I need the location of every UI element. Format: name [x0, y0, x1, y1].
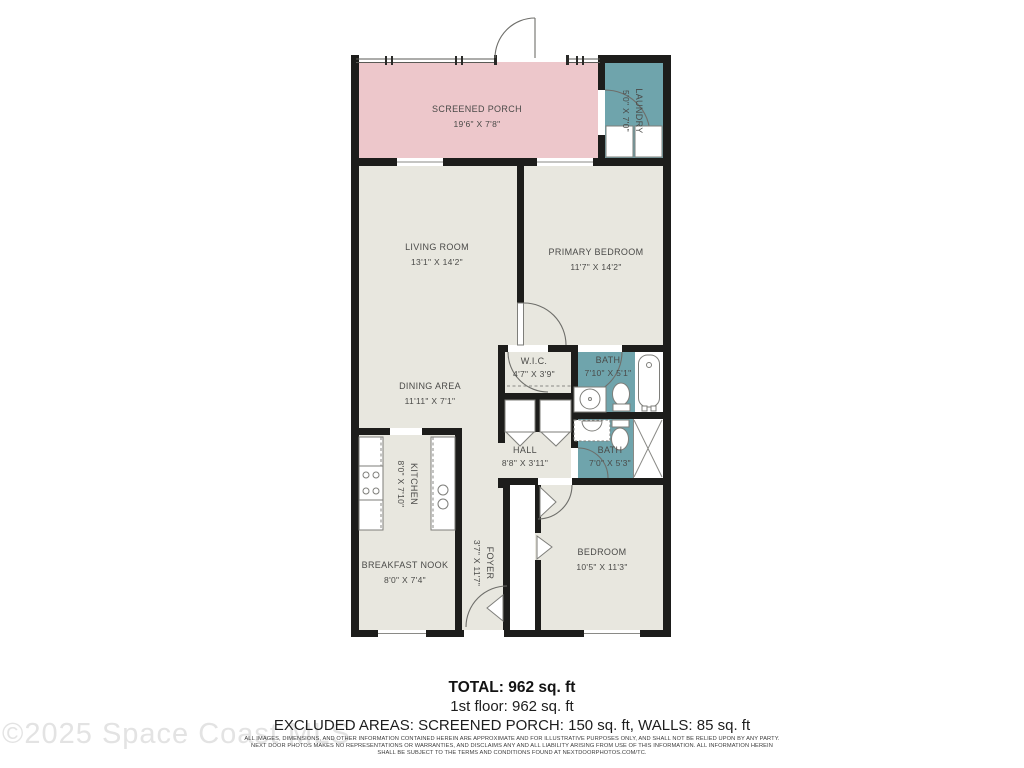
label-screened-porch: SCREENED PORCH: [432, 104, 522, 114]
wall-laundry-left-upper: [598, 63, 605, 90]
summary-total: TOTAL: 962 sq. ft: [449, 679, 576, 696]
shower: [633, 419, 663, 478]
label-foyer: FOYER: [485, 547, 495, 580]
window-living-porch: [397, 158, 443, 166]
window-tick: [576, 56, 578, 65]
disclaimer-line-2: NEXT DOOR PHOTOS MAKES NO REPRESENTATION…: [251, 743, 773, 749]
bathtub: [635, 352, 663, 412]
opening-bath1-door: [578, 345, 622, 352]
dims-primary-bedroom: 11'7" X 14'2": [570, 262, 621, 272]
disclaimer-block: ALL IMAGES, DIMENSIONS, AND OTHER INFORM…: [244, 736, 779, 756]
window-breakfast-nook: [378, 630, 426, 637]
bath1-sink: [574, 387, 606, 412]
label-bath-2: BATH: [598, 445, 623, 455]
wall-exterior-left: [351, 158, 359, 637]
label-kitchen: KITCHEN: [409, 463, 419, 505]
label-wic: W.I.C.: [521, 356, 548, 366]
summary-floor: 1st floor: 962 sq. ft: [450, 698, 574, 715]
label-dining-area: DINING AREA: [399, 381, 461, 391]
label-breakfast-nook: BREAKFAST NOOK: [362, 560, 449, 570]
kitchen-sink: [438, 485, 448, 495]
opening-bath2-door: [571, 448, 578, 478]
kitchen-counter-right: [431, 437, 455, 530]
opening-wic-door: [508, 345, 548, 352]
wall-wic-bottom: [505, 393, 573, 400]
floorplan-canvas: SCREENED PORCH 19'6" X 7'8" LAUNDRY 5'0"…: [0, 0, 1024, 768]
opening-laundry-door: [598, 90, 605, 135]
opening-bedroom-door: [538, 478, 572, 485]
wall-laundry-left-lower: [598, 135, 605, 158]
dims-bath-1: 7'10" X 5'1": [585, 368, 632, 378]
wall-bath1-bottom: [571, 412, 671, 419]
disclaimer-line-1: ALL IMAGES, DIMENSIONS, AND OTHER INFORM…: [244, 736, 779, 742]
wall-closet-divider: [535, 400, 540, 432]
wall-dining-wic: [498, 345, 505, 443]
wall-porch-left: [351, 55, 359, 166]
summary-excluded: EXCLUDED AREAS: SCREENED PORCH: 150 sq. …: [274, 717, 751, 734]
dims-breakfast-nook: 8'0" X 7'4": [384, 575, 426, 585]
wall-foyer-right: [503, 485, 510, 630]
door-jamb-tick: [566, 55, 569, 65]
kitchen-counter-left: [359, 437, 383, 530]
dims-dining-area: 11'11" X 7'1": [405, 396, 456, 406]
hall-closet-right: [540, 400, 571, 432]
dims-laundry: 5'0" X 7'0": [621, 90, 631, 132]
label-laundry: LAUNDRY: [634, 88, 644, 133]
label-bedroom: BEDROOM: [578, 547, 627, 557]
window-tick: [385, 56, 387, 65]
wall-bedroom-closet-lower: [535, 560, 541, 630]
label-living-room: LIVING ROOM: [405, 242, 469, 252]
wall-kitchen-foyer: [455, 428, 462, 630]
opening-kitchen-entry: [390, 428, 422, 435]
dims-bath-2: 7'0" X 5'3": [589, 458, 631, 468]
dims-screened-porch: 19'6" X 7'8": [454, 119, 501, 129]
kitchen-sink: [438, 499, 448, 509]
window-tick: [391, 56, 393, 65]
label-hall: HALL: [513, 445, 537, 455]
hall-closet-left: [505, 400, 535, 432]
dims-hall: 8'8" X 3'11": [502, 458, 548, 468]
bath1-toilet: [613, 383, 631, 411]
door-porch-entry: [495, 18, 535, 58]
window-tick: [461, 56, 463, 65]
dims-wic: 4'7" X 3'9": [513, 369, 555, 379]
dims-living-room: 13'1" X 14'2": [411, 257, 463, 267]
window-bedroom: [584, 630, 640, 637]
window-tick: [582, 56, 584, 65]
label-bath-1: BATH: [596, 355, 621, 365]
wall-living-primary: [517, 166, 524, 303]
dims-bedroom: 10'5" X 11'3": [576, 562, 627, 572]
disclaimer-line-3: SHALL BE SUBJECT TO THE TERMS AND CONDIT…: [377, 750, 646, 756]
bath2-vanity-sink: [574, 420, 610, 441]
dims-foyer: 3'7" X 11'7": [472, 540, 482, 586]
dims-kitchen: 8'0" X 7'10": [396, 461, 406, 508]
wall-laundry-top: [598, 55, 671, 63]
window-tick: [455, 56, 457, 65]
stove: [359, 466, 383, 500]
window-primary-porch: [537, 158, 593, 166]
opening-entry-door: [464, 630, 504, 637]
bedroom-closet: [510, 485, 535, 630]
label-primary-bedroom: PRIMARY BEDROOM: [549, 247, 644, 257]
summary-block: TOTAL: 962 sq. ft 1st floor: 962 sq. ft …: [274, 679, 751, 734]
wall-lower-horizontal: [498, 478, 671, 485]
